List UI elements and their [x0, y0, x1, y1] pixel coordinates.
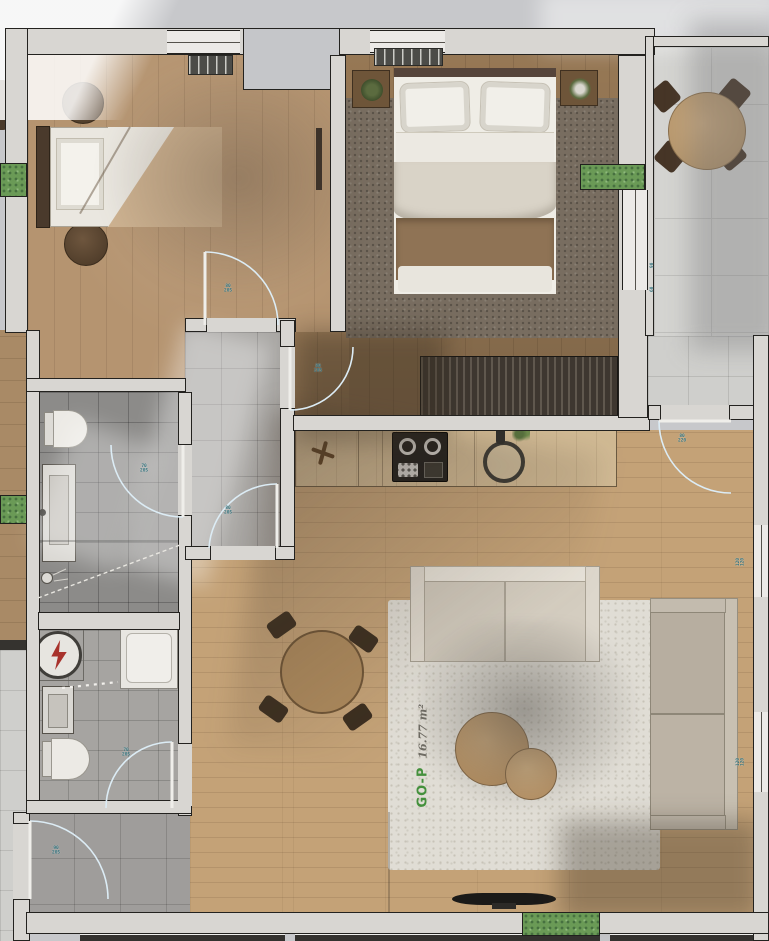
- door-swing-arc: [30, 821, 108, 899]
- annotation-overlay: [0, 0, 769, 941]
- tag-line: 120: [741, 558, 746, 566]
- window-dimension-tag: 60: [650, 287, 655, 292]
- tag-line: 60: [650, 287, 655, 292]
- shower-glass-line: [38, 545, 180, 598]
- tag-line: 90: [650, 263, 655, 268]
- door-dimension-tag: 80 205: [224, 506, 232, 515]
- tag-line: 205: [224, 511, 232, 516]
- floor-plan-canvas: GO-P 16.77 m²: [0, 0, 769, 941]
- tag-line: 205: [140, 469, 148, 474]
- door-swing-arc: [106, 742, 172, 808]
- door-dimension-tag: 80 205: [224, 284, 232, 293]
- door-leaves: [30, 252, 731, 899]
- tag-line: 205: [224, 289, 232, 294]
- shower-spray-line: [54, 579, 68, 581]
- tag-line: 205: [52, 851, 60, 856]
- door-dimension-tag: 80 205: [314, 364, 322, 373]
- door-swing-arc: [205, 252, 278, 325]
- door-swing-arc: [290, 347, 353, 410]
- window-dimension-tag: 120 120: [736, 558, 745, 566]
- door-dimension-tag: 80 220: [678, 434, 686, 443]
- door-dimension-tag: 70 205: [140, 464, 148, 473]
- tag-line: 120: [741, 758, 746, 766]
- tag-line: 205: [314, 369, 322, 374]
- shower-spray-line: [53, 569, 66, 575]
- door-dimension-tag: 70 205: [122, 748, 130, 757]
- door-dimension-tag: 90 205: [52, 846, 60, 855]
- door-swing-arcs: [30, 252, 731, 899]
- tile-edge-marks: [62, 682, 118, 688]
- shower-drain-icon: [42, 573, 53, 584]
- door-swing-arc: [659, 421, 731, 493]
- tag-line: 220: [678, 439, 686, 444]
- tag-line: 205: [122, 753, 130, 758]
- shower-markings: [38, 545, 180, 688]
- window-dimension-tag: 90: [650, 263, 655, 268]
- door-swing-arc: [111, 445, 183, 517]
- window-dimension-tag: 120 120: [736, 758, 745, 766]
- door-swing-arc: [209, 484, 277, 548]
